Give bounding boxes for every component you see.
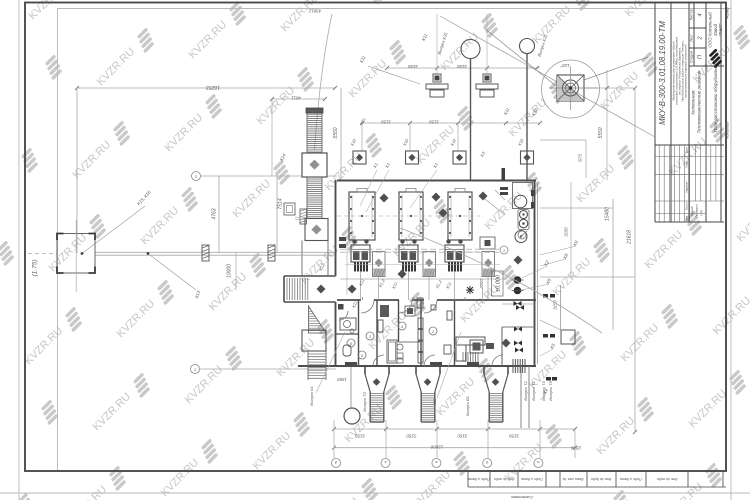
svg-text:21618: 21618 (627, 230, 633, 245)
svg-text:К15, К16: К15, К16 (136, 189, 152, 206)
svg-text:К11: К11 (445, 281, 453, 289)
svg-text:Инв. № подл.: Инв. № подл. (493, 477, 514, 481)
svg-text:К3: К3 (479, 150, 486, 157)
svg-text:К9: К9 (572, 239, 579, 246)
svg-text:3150: 3150 (457, 434, 468, 439)
svg-text:Взам. инв. №: Взам. инв. № (562, 477, 583, 481)
svg-text:4011: 4011 (291, 96, 301, 101)
svg-text:Выпуск Т2: Выпуск Т2 (523, 380, 528, 400)
svg-text:К2: К2 (543, 259, 550, 266)
svg-text:План расстановки оборудования: План расстановки оборудования (713, 63, 718, 132)
svg-text:2000: 2000 (570, 446, 582, 451)
svg-text:4: 4 (401, 324, 404, 329)
svg-text:К10: К10 (349, 137, 357, 146)
svg-text:"РЭП": "РЭП" (718, 23, 723, 36)
svg-text:Изм.: Изм. (684, 215, 688, 221)
svg-text:2000: 2000 (479, 279, 484, 290)
svg-text:Согласовано: Согласовано (511, 495, 533, 499)
svg-text:Проверил: Проверил (695, 204, 699, 218)
svg-text:2: 2 (698, 36, 704, 40)
svg-text:К6: К6 (545, 277, 552, 284)
svg-text:±0,000: ±0,000 (496, 274, 502, 292)
svg-text:Выпуск К1: Выпуск К1 (309, 386, 314, 405)
svg-text:3150: 3150 (553, 300, 558, 310)
svg-text:Выпуск Т4: Выпуск Т4 (541, 380, 546, 400)
svg-text:3150: 3150 (564, 227, 569, 237)
svg-text:Выпуск К31: Выпуск К31 (437, 31, 449, 55)
svg-text:восстановление паровой котельн: восстановление паровой котельной (684, 44, 688, 98)
svg-text:ГИП: ГИП (700, 209, 704, 216)
svg-text:П: П (698, 55, 704, 59)
svg-text:10000: 10000 (227, 264, 233, 278)
svg-text:3150: 3150 (456, 64, 467, 69)
svg-text:Выпуск Т9: Выпуск Т9 (548, 380, 553, 400)
svg-text:К8: К8 (562, 252, 569, 259)
svg-text:4763: 4763 (212, 208, 218, 219)
svg-text:в: в (435, 460, 437, 465)
svg-text:Подп. и дата: Подп. и дата (620, 477, 641, 481)
svg-text:2: 2 (194, 174, 198, 179)
svg-text:Стадия: Стадия (689, 51, 693, 63)
svg-text:Копировал: Копировал (726, 121, 730, 138)
svg-text:Подп.: Подп. (684, 160, 688, 167)
svg-text:1060: 1060 (337, 377, 347, 382)
svg-text:К11: К11 (358, 278, 366, 286)
svg-text:3150: 3150 (354, 434, 365, 439)
svg-text:а: а (537, 460, 540, 465)
svg-text:Дата: Дата (684, 147, 688, 153)
svg-text:МКУ-В-300-3.01.08.19.00-ТМ: МКУ-В-300-3.01.08.19.00-ТМ (658, 21, 667, 125)
svg-text:Инв. № подл.: Инв. № подл. (656, 477, 677, 481)
svg-text:3150: 3150 (407, 64, 418, 69)
svg-text:К11: К11 (503, 106, 511, 115)
svg-text:Листов: Листов (690, 9, 694, 20)
svg-text:7514: 7514 (278, 198, 284, 209)
svg-text:Подп. и дата: Подп. и дата (468, 477, 489, 481)
svg-text:Тепломеханические решения: Тепломеханические решения (697, 70, 702, 134)
svg-text:К1: К1 (372, 162, 379, 169)
svg-text:К11: К11 (359, 54, 367, 63)
svg-text:К1.2: К1.2 (435, 279, 444, 289)
svg-text:К13: К13 (194, 290, 201, 299)
svg-text:7: 7 (521, 233, 524, 238)
svg-text:Выпуск Т3: Выпуск Т3 (362, 391, 367, 411)
svg-text:6: 6 (361, 353, 364, 358)
svg-text:3150: 3150 (508, 434, 519, 439)
svg-text:16253: 16253 (206, 84, 220, 90)
svg-text:Кол.уч: Кол.уч (684, 201, 688, 210)
svg-text:д: д (334, 460, 337, 465)
svg-text:Формат: Формат (726, 7, 730, 19)
svg-text:К5: К5 (549, 342, 556, 349)
svg-text:№докум.: №докум. (685, 181, 688, 192)
svg-text:К13: К13 (432, 398, 437, 406)
svg-text:3150: 3150 (428, 120, 439, 125)
svg-text:4: 4 (698, 13, 704, 16)
svg-text:Лист: Лист (690, 34, 694, 42)
svg-text:ООО Котельный: ООО Котельный (708, 12, 713, 48)
svg-text:673: 673 (578, 154, 583, 162)
svg-text:г: г (384, 460, 386, 465)
svg-text:К11: К11 (421, 32, 429, 41)
svg-text:Подп. и дата: Подп. и дата (521, 477, 542, 481)
svg-text:К1: К1 (432, 162, 439, 169)
svg-text:5: 5 (350, 341, 353, 346)
svg-text:Котельная.: Котельная. (691, 89, 696, 114)
svg-text:К10: К10 (402, 137, 410, 146)
svg-text:К11: К11 (391, 281, 399, 289)
svg-text:Разраб.: Разраб. (690, 206, 694, 217)
svg-text:К10: К10 (517, 137, 525, 146)
svg-text:1: 1 (503, 248, 505, 253)
svg-text:(1.75): (1.75) (32, 260, 39, 277)
svg-text:120°: 120° (560, 63, 570, 68)
svg-text:2: 2 (431, 329, 435, 334)
svg-text:1: 1 (194, 367, 196, 372)
svg-text:К11: К11 (351, 300, 359, 308)
svg-text:5550: 5550 (598, 127, 604, 138)
svg-text:К10: К10 (449, 137, 457, 146)
svg-text:К14: К14 (279, 152, 287, 162)
svg-text:43812: 43812 (308, 9, 321, 14)
svg-text:К11: К11 (359, 117, 367, 125)
svg-text:Выпуск В1: Выпуск В1 (465, 396, 470, 416)
svg-text:К1: К1 (384, 162, 391, 169)
svg-text:б: б (485, 460, 488, 465)
svg-text:15480: 15480 (605, 207, 611, 221)
svg-text:3150: 3150 (406, 434, 417, 439)
svg-text:5550: 5550 (333, 127, 339, 138)
svg-text:3150: 3150 (380, 120, 391, 125)
svg-text:Выпуск Т1: Выпуск Т1 (531, 381, 536, 400)
svg-text:Инв. № дубл.: Инв. № дубл. (591, 477, 612, 481)
